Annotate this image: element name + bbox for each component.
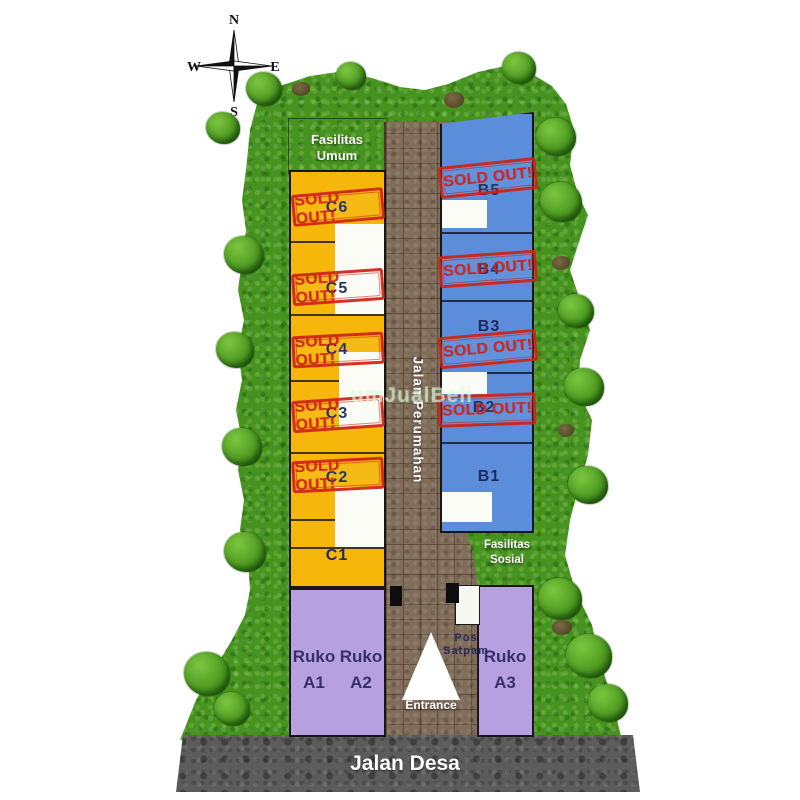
tree-bush [216, 332, 254, 368]
tree-bush [564, 368, 604, 406]
fasilitas-umum-line1: Fasilitas [311, 132, 363, 147]
tree-bush [502, 52, 536, 84]
ruko-a2-label: Ruko A2 [340, 644, 383, 696]
tree-bush [558, 294, 594, 328]
sold-out-stamp: SOLD OUT! [291, 268, 385, 306]
tree-bush [336, 62, 366, 90]
tree-bush [222, 428, 262, 466]
jalan-perumahan-label: Jalan Perumahan [411, 357, 426, 484]
compass-east-label: E [270, 60, 279, 75]
ruko-a2-line2: A2 [350, 673, 372, 692]
block-column-c [289, 170, 386, 588]
pos-satpam-line1: Pos [454, 632, 477, 644]
building-footprint [442, 200, 487, 228]
sold-out-stamp: SOLD OUT! [291, 332, 385, 369]
ruko-a1-line1: Ruko [293, 647, 336, 666]
siteplan: N S W E Jalan Perumahan Fasilitas Umum [0, 0, 800, 800]
tree-bush [540, 182, 582, 222]
compass-west-label: W [187, 60, 201, 75]
gate-pillar-right [446, 583, 459, 603]
ruko-a3-line2: A3 [494, 673, 516, 692]
fasilitas-sosial-label: Fasilitas Sosial [478, 538, 536, 568]
unit-divider [291, 314, 384, 316]
watermark-text: umJualBeli [351, 384, 473, 408]
ruko-a3-label: Ruko A3 [484, 644, 527, 696]
unit-divider [442, 232, 532, 234]
pos-satpam-label: Pos Satpam [443, 632, 489, 658]
jalan-desa-label: Jalan Desa [300, 752, 510, 776]
ruko-a1-label: Ruko A1 [293, 644, 336, 696]
building-footprint [442, 492, 492, 522]
entrance-label: Entrance [386, 698, 476, 712]
pos-satpam-line2: Satpam [443, 645, 489, 657]
tree-bush [214, 692, 250, 726]
sold-out-stamp: SOLD OUT! [291, 187, 385, 227]
fasilitas-umum-label: Fasilitas Umum [288, 132, 386, 164]
tree-bush [536, 118, 576, 156]
tree-bush [184, 652, 230, 696]
tree-bush [224, 532, 266, 572]
ruko-a2-line1: Ruko [340, 647, 383, 666]
fasilitas-umum-line2: Umum [317, 148, 357, 163]
unit-label-b1: B1 [478, 468, 500, 486]
tree-bush [246, 72, 282, 106]
tree-bush [224, 236, 264, 274]
building-footprint [335, 487, 384, 547]
unit-label-c1: C1 [326, 547, 348, 565]
fasilitas-sosial-line1: Fasilitas [484, 539, 530, 551]
tree-bush [568, 466, 608, 504]
tree-bush [206, 112, 240, 144]
compass-north-label: N [229, 13, 239, 28]
sold-out-stamp: SOLD OUT! [291, 457, 385, 494]
ruko-a3-line1: Ruko [484, 647, 527, 666]
unit-divider [442, 442, 532, 444]
tree-bush [538, 578, 582, 620]
tree-bush [566, 634, 612, 678]
ruko-a1-line2: A1 [303, 673, 325, 692]
unit-divider [442, 300, 532, 302]
gate-pillar-left [390, 586, 402, 606]
tree-bush [588, 684, 628, 722]
fasilitas-sosial-line2: Sosial [490, 554, 524, 566]
unit-divider [291, 452, 384, 454]
sold-out-stamp: SOLD OUT! [438, 250, 538, 289]
